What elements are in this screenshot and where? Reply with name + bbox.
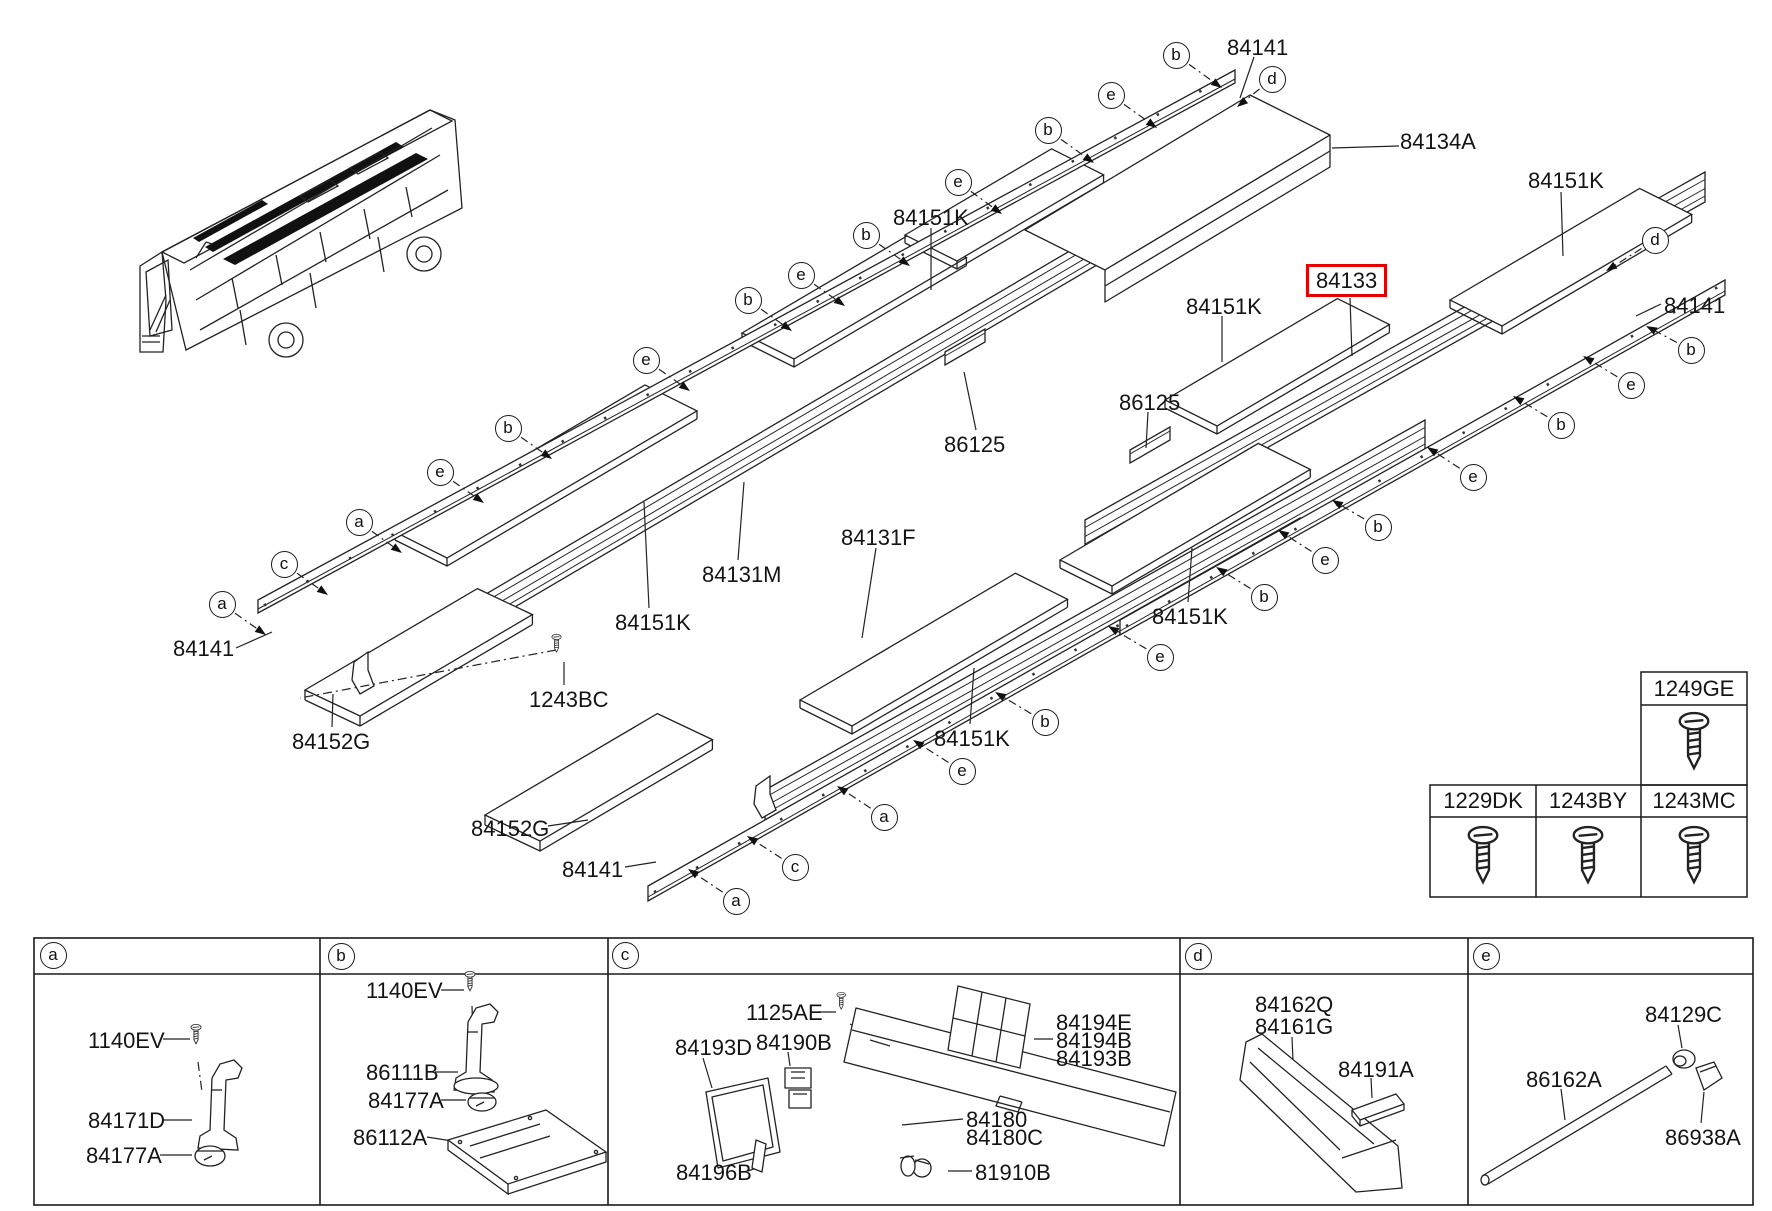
part-label: 84151K (1152, 604, 1228, 629)
screw-icon (1469, 827, 1498, 882)
callout-b: b (853, 222, 880, 249)
callout-d: d (1259, 66, 1286, 93)
part-label: 86111B (366, 1060, 439, 1085)
fastener-part-label: 1249GE (1654, 676, 1735, 701)
callout-e: e (945, 169, 972, 196)
part-label: 84177A (368, 1088, 444, 1113)
part-label: 1243BC (529, 687, 609, 712)
part-label: 84161G (1255, 1014, 1333, 1039)
callout-e: e (788, 262, 815, 289)
screw-icon (1680, 827, 1709, 882)
part-label: 84180C (966, 1125, 1043, 1150)
part-label: 84151K (1186, 294, 1262, 319)
part-label: 84141 (1664, 293, 1725, 318)
part-label: 86938A (1665, 1125, 1741, 1150)
screw-icon (465, 971, 475, 990)
callout-b: b (1035, 117, 1062, 144)
part-label: 84151K (615, 610, 691, 635)
part-label: 84141 (1227, 35, 1288, 60)
part-label: 84171D (88, 1108, 165, 1133)
diagram-linework (0, 0, 1772, 1211)
screw-icon (837, 992, 846, 1009)
part-label: 84131M (702, 562, 782, 587)
part-label: 84193B (1056, 1046, 1132, 1071)
panel-header-a: a (40, 942, 67, 969)
callout-b: b (1032, 709, 1059, 736)
callout-b: b (1251, 584, 1278, 611)
callout-b: b (1365, 514, 1392, 541)
parts-diagram-canvas: 8414184134A84151K841418413384151K84151K8… (0, 0, 1772, 1211)
part-label: 81910B (975, 1160, 1051, 1185)
callout-c: c (782, 854, 809, 881)
callout-b: b (495, 415, 522, 442)
part-label: 1140EV (88, 1028, 165, 1053)
part-label: 86112A (353, 1125, 427, 1150)
bus-inset-drawing (140, 110, 462, 357)
screw-icon (191, 1024, 201, 1043)
screw-icon (1680, 713, 1709, 768)
screw-icon (1574, 827, 1603, 882)
part-label: 1125AE (746, 1000, 823, 1025)
callout-c: c (271, 551, 298, 578)
highlighted-part-label[interactable]: 84133 (1306, 264, 1387, 297)
part-label: 1140EV (366, 978, 443, 1003)
part-label: 84129C (1645, 1002, 1722, 1027)
callout-a: a (723, 888, 750, 915)
part-label: 84152G (471, 816, 549, 841)
panel-header-d: d (1185, 943, 1212, 970)
callout-a: a (871, 804, 898, 831)
callout-e: e (1618, 372, 1645, 399)
part-label: 84151K (893, 205, 969, 230)
callout-b: b (1163, 42, 1190, 69)
part-label: 86125 (944, 432, 1005, 457)
screw-icon (552, 634, 561, 652)
part-label: 84131F (841, 525, 916, 550)
panel-a-parts (195, 1060, 242, 1166)
callout-e: e (1147, 644, 1174, 671)
callout-e: e (1098, 82, 1125, 109)
part-label: 84177A (86, 1143, 162, 1168)
callout-d: d (1642, 227, 1669, 254)
part-label: 84193D (675, 1035, 752, 1060)
callout-e: e (427, 459, 454, 486)
part-label: 84134A (1400, 129, 1476, 154)
part-label: 86125 (1119, 390, 1180, 415)
panel-header-c: c (612, 942, 639, 969)
callout-a: a (209, 591, 236, 618)
part-label: 84141 (562, 857, 623, 882)
part-label: 84191A (1338, 1057, 1414, 1082)
panel-b-parts (448, 1004, 606, 1194)
part-label: 84151K (1528, 168, 1604, 193)
part-label: 84151K (934, 726, 1010, 751)
callout-e: e (633, 347, 660, 374)
callout-a: a (346, 509, 373, 536)
fastener-part-label: 1229DK (1443, 788, 1523, 813)
callout-b: b (1678, 337, 1705, 364)
fastener-part-label: 1243MC (1652, 788, 1735, 813)
part-label: 84141 (173, 636, 234, 661)
callout-e: e (1460, 464, 1487, 491)
fastener-part-label: 1243BY (1549, 788, 1627, 813)
panel-header-b: b (328, 943, 355, 970)
part-label: 86162A (1526, 1067, 1602, 1092)
callout-b: b (1548, 412, 1575, 439)
panel-header-e: e (1473, 943, 1500, 970)
part-label: 84196B (676, 1160, 752, 1185)
callout-e: e (949, 758, 976, 785)
callout-b: b (735, 287, 762, 314)
part-label: 84152G (292, 729, 370, 754)
callout-e: e (1312, 547, 1339, 574)
part-label: 84190B (756, 1030, 832, 1055)
